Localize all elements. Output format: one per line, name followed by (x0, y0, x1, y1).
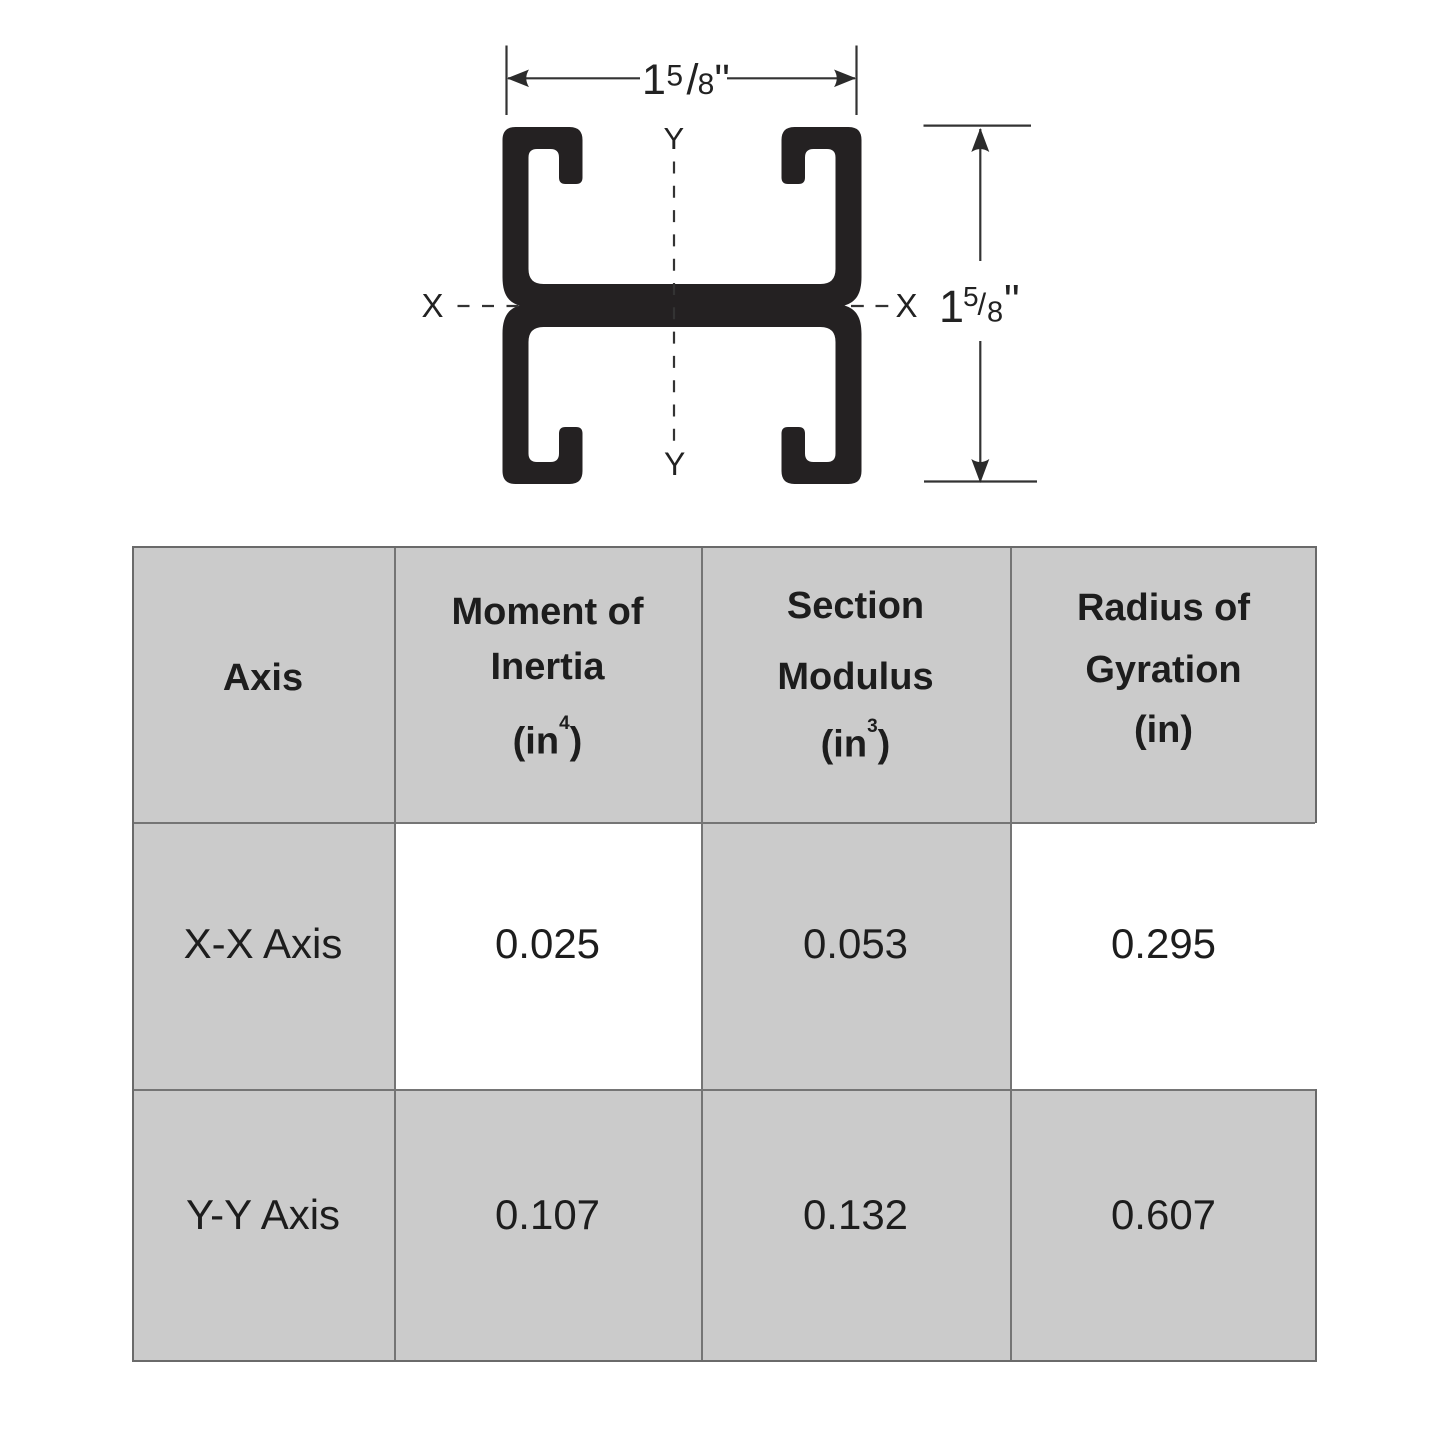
svg-text:X: X (896, 287, 918, 324)
svg-text:1: 1 (642, 56, 666, 104)
svg-text:X: X (422, 287, 444, 324)
svg-text:Y: Y (664, 121, 685, 156)
svg-text:Y: Y (664, 446, 685, 482)
svg-text:": " (1004, 276, 1020, 325)
svg-text:8: 8 (987, 297, 1003, 329)
svg-text:/: / (978, 287, 987, 322)
svg-text:5: 5 (963, 281, 979, 312)
svg-text:": " (715, 56, 730, 104)
svg-text:1: 1 (939, 281, 964, 332)
svg-text:5: 5 (666, 59, 683, 92)
svg-text:8: 8 (698, 68, 715, 101)
